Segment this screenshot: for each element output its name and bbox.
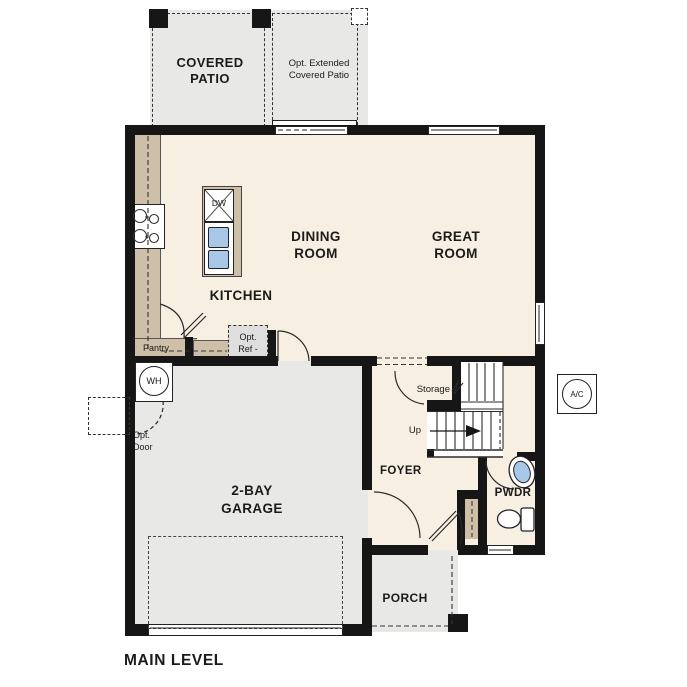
- room-label-kitchen: KITCHEN: [196, 288, 286, 305]
- stairs-upper-run: [461, 362, 503, 411]
- wall-stair-stub-h: [427, 400, 461, 411]
- room-label-dining: DINING ROOM: [266, 229, 366, 263]
- garage-clearance-outline: [148, 536, 343, 629]
- wall-pwdr-left: [478, 452, 487, 550]
- water-heater-icon: WH: [139, 366, 169, 396]
- dishwasher-label: DW: [204, 198, 234, 209]
- sliding-door: [275, 126, 348, 135]
- room-label-great: GREAT ROOM: [406, 229, 506, 263]
- opt-patio-post: [351, 8, 368, 25]
- ac-unit-icon: A/C: [562, 379, 592, 409]
- window-great-room-right: [535, 302, 545, 345]
- patio-post-left: [149, 9, 168, 28]
- wall-left: [125, 125, 135, 636]
- room-label-porch: PORCH: [372, 591, 438, 606]
- sink-basin-top-icon: [208, 227, 229, 248]
- opt-door-outline: [88, 397, 130, 435]
- label-opt-ref: Opt. Ref -: [228, 331, 268, 355]
- water-heater-label: WH: [147, 376, 162, 386]
- stairs-bottom-band: [427, 449, 503, 457]
- sink-basin-bottom-icon: [208, 250, 229, 269]
- room-label-pwdr: PWDR: [488, 486, 538, 500]
- wall-bottom-foyer: [362, 545, 428, 555]
- wall-bottom-closet: [458, 545, 487, 555]
- wall-garage-bottom-left: [125, 624, 150, 636]
- label-storage: Storage: [398, 384, 450, 396]
- window-great-room-top: [428, 126, 500, 135]
- floor-plan: WH A/C DW: [0, 0, 687, 687]
- wall-hall-pwdr: [517, 452, 545, 461]
- coat-closet: [465, 499, 479, 539]
- wall-bottom-pwdr: [514, 545, 545, 555]
- porch-post: [448, 614, 468, 632]
- wall-garage-foyer-top: [362, 356, 372, 490]
- room-label-foyer: FOYER: [380, 464, 440, 478]
- ac-unit-label: A/C: [570, 390, 583, 399]
- label-pantry: Pantry: [128, 343, 184, 354]
- stairs-band-cap: [427, 449, 434, 457]
- room-label-garage: 2-BAY GARAGE: [202, 482, 302, 518]
- label-up: Up: [402, 425, 428, 437]
- wall-closet-left: [457, 490, 465, 550]
- patio-post-right: [252, 9, 271, 28]
- room-label-covered-patio: COVERED PATIO: [160, 55, 260, 88]
- window-pwdr: [487, 545, 514, 555]
- page-title: MAIN LEVEL: [124, 651, 264, 670]
- label-opt-door: Opt. Door: [133, 429, 173, 453]
- wall-garage-bottom-right: [343, 624, 372, 636]
- room-label-opt-patio: Opt. Extended Covered Patio: [272, 58, 366, 82]
- stairs-lower-run: [427, 411, 503, 450]
- wall-closet-top: [457, 490, 487, 499]
